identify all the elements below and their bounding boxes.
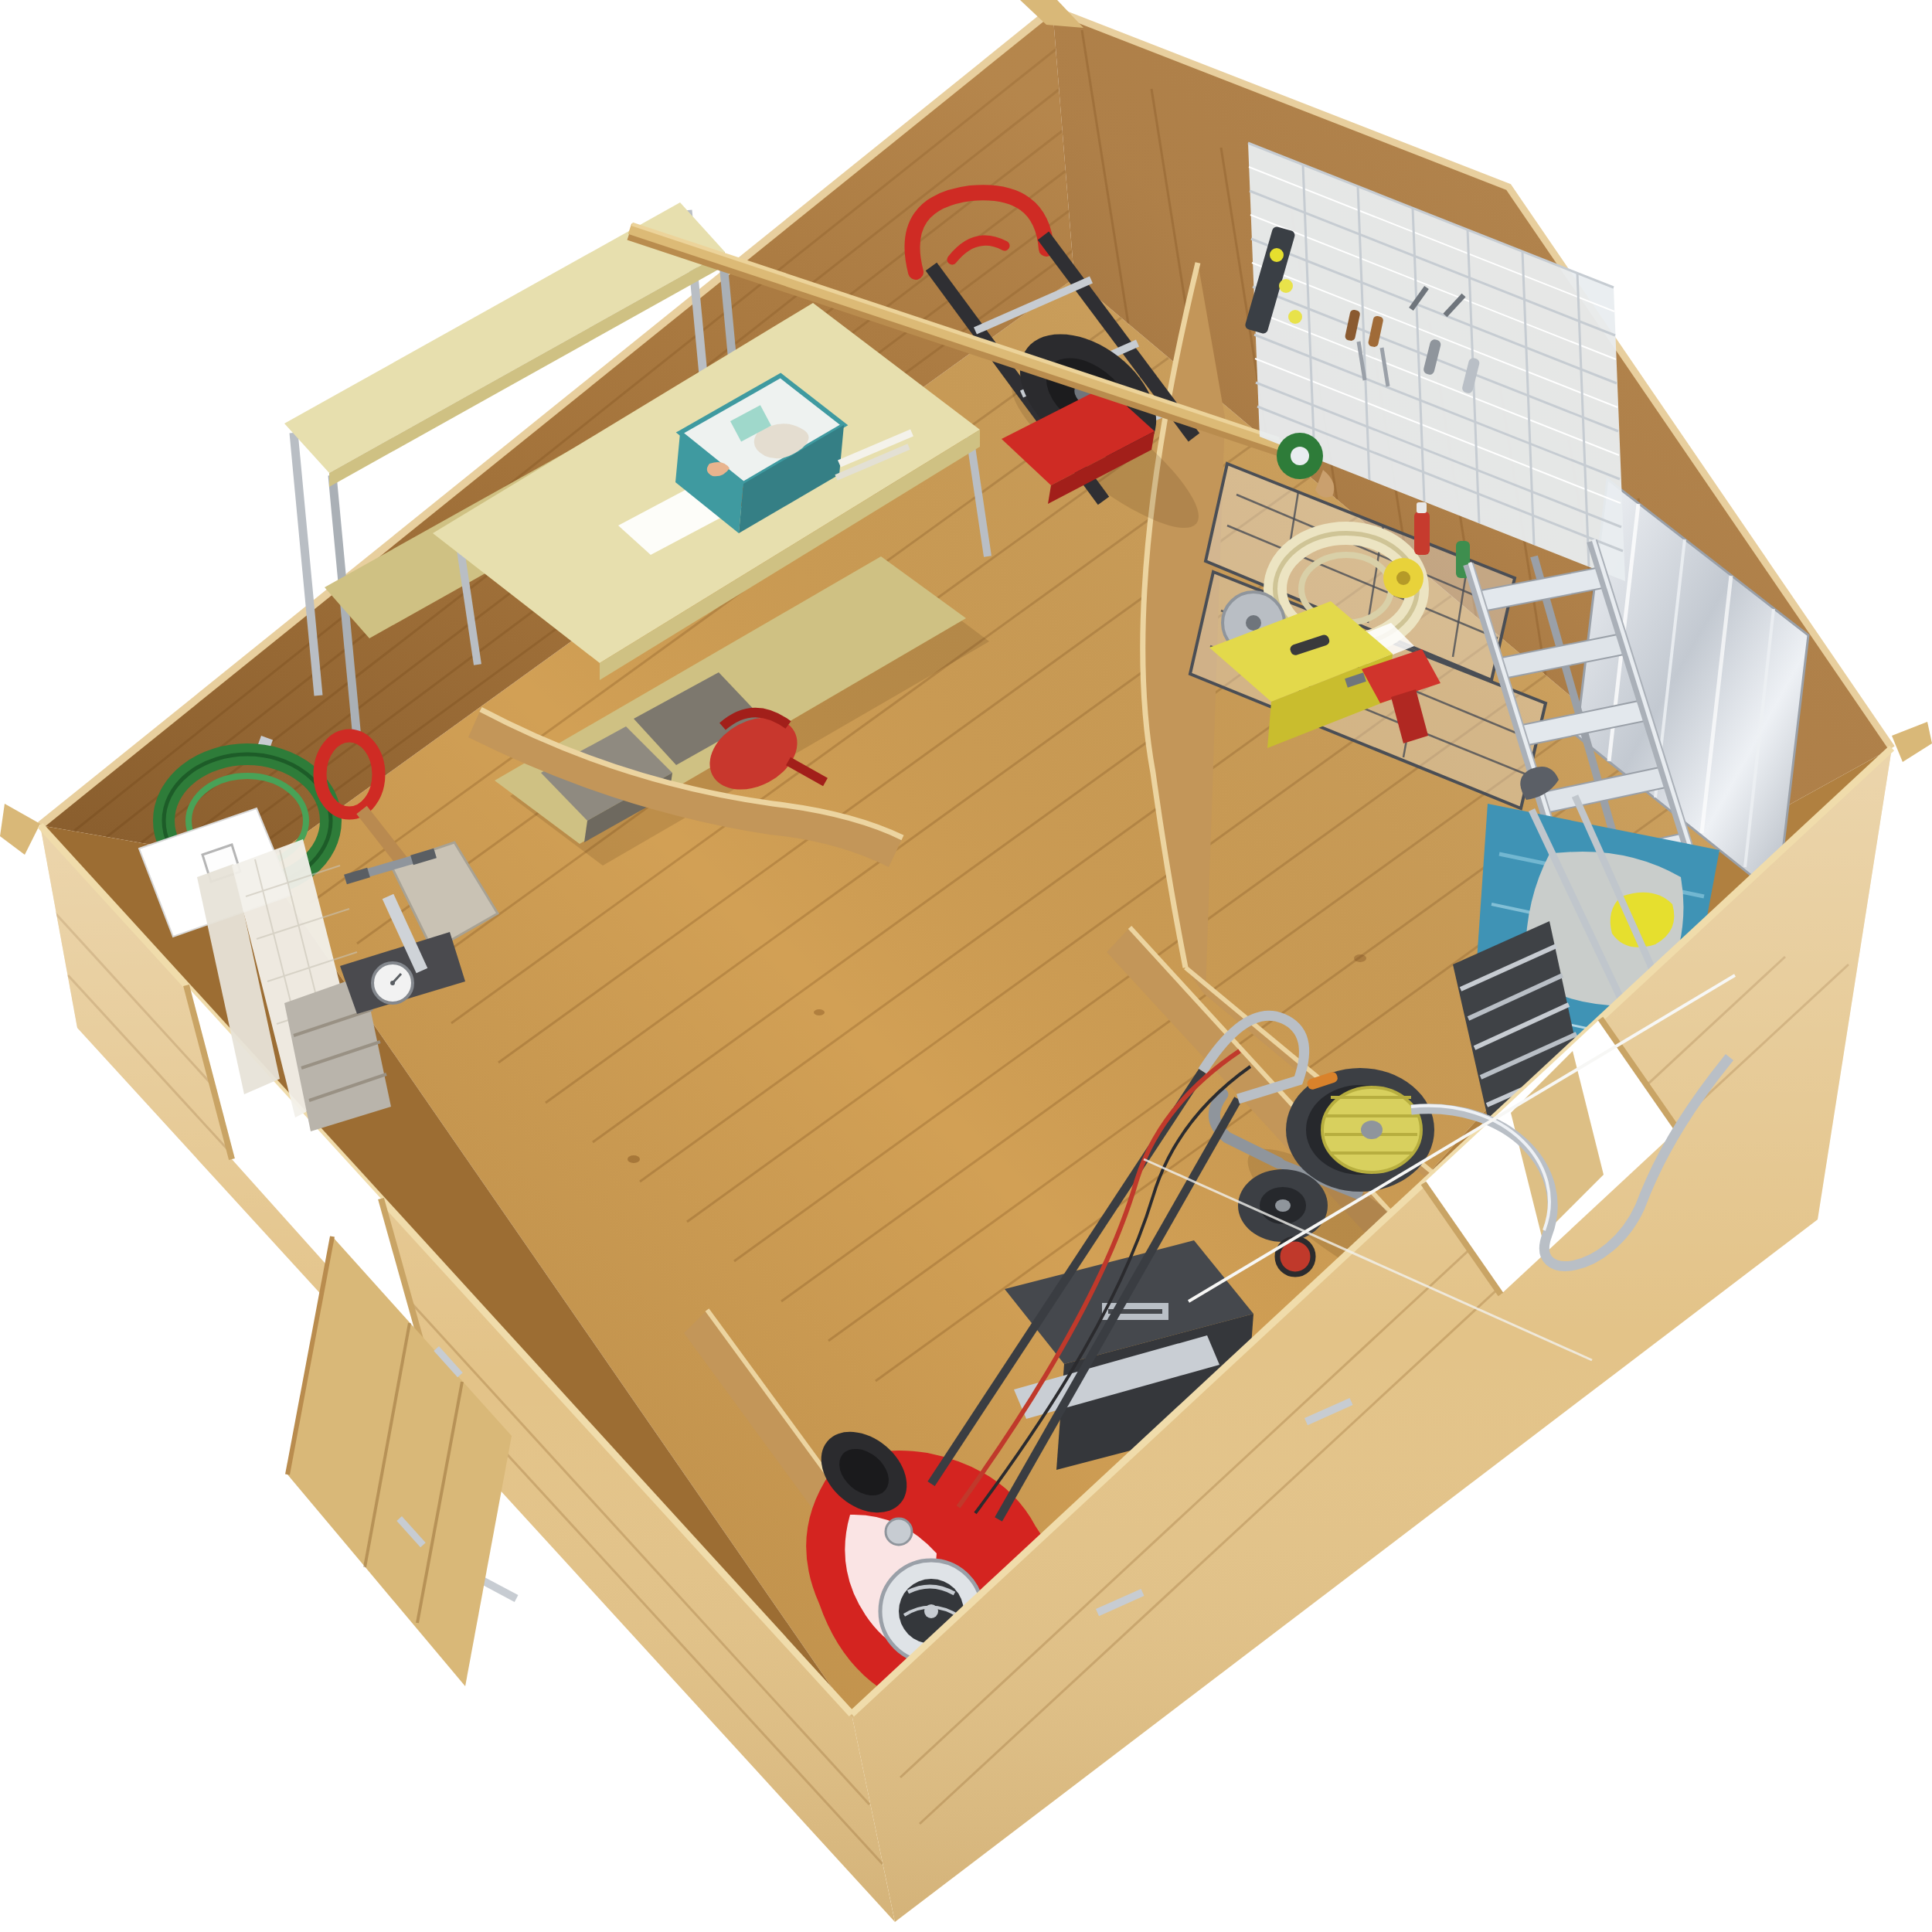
roof-trim-tab-west — [0, 804, 40, 855]
shed-cutaway-illustration — [0, 0, 1932, 1932]
roof-trim-tab-east — [1892, 722, 1932, 762]
shed-render-canvas — [0, 0, 1932, 1932]
